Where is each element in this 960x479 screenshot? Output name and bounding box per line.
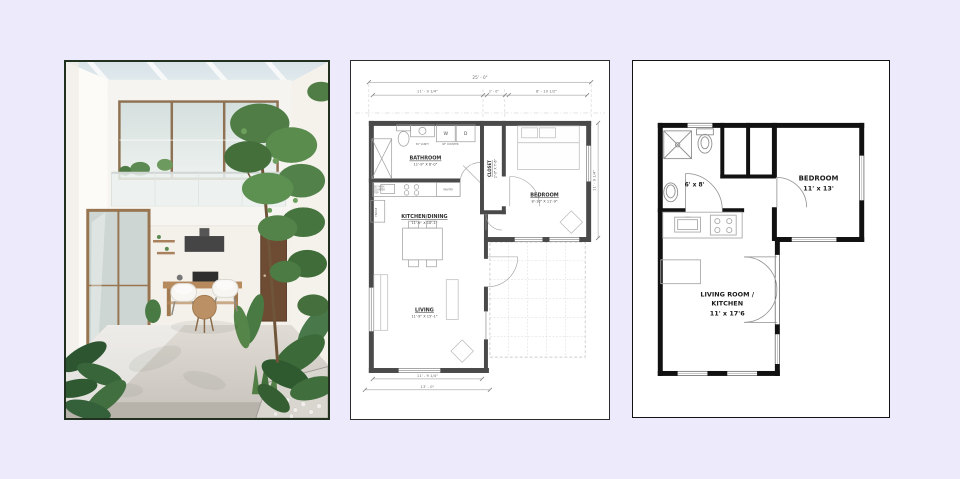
- washer-label: W: [444, 131, 449, 137]
- room-label-bedroom: BEDROOM: [530, 192, 559, 198]
- room-size-closet: 2'-0" X 7'-6": [493, 158, 497, 178]
- floor-plan-simple-drawing: 6' x 8' BEDROOM 11' x 13' LIVING ROOM / …: [633, 61, 889, 417]
- dim-top-left: 11' - 9 1/4": [417, 90, 438, 94]
- dryer-label: D: [464, 131, 468, 137]
- fridge-label: FRIDGE: [375, 207, 378, 216]
- room-size-bathroom: 6' x 8': [685, 181, 705, 188]
- room-label-bedroom: BEDROOM: [799, 174, 839, 182]
- room-size-kitchen: 11'-9" X 10'-1": [411, 221, 437, 225]
- dim-top-mid: 2' - 0": [489, 90, 500, 94]
- dim-bottom-outer: 13' - 0": [421, 385, 435, 389]
- patio-deck: [490, 242, 585, 357]
- room-label-bathroom: BATHROOM: [409, 156, 441, 162]
- dim-overall-width: 25' - 0": [472, 75, 487, 80]
- room-size-bedroom: 8'-10" X 11'-9": [531, 199, 557, 203]
- kitchen-fixtures: [661, 212, 742, 283]
- vanity-label: 36" VANITY: [416, 143, 430, 146]
- dim-bottom-inner: 11' - 9 1/4": [417, 374, 438, 378]
- room-label-living-line1: LIVING ROOM /: [700, 291, 754, 299]
- room-size-living: 11'-9" X 15'-1": [411, 314, 437, 318]
- room-size-bathroom: 11'-9" X 6'-0": [413, 163, 437, 167]
- room-size-bedroom: 11' x 13': [803, 184, 834, 192]
- courtyard-photo-art: [66, 62, 328, 418]
- bathroom-fixtures: [664, 129, 714, 202]
- dim-top-right: 8' - 10 1/2": [536, 90, 557, 94]
- room-size-living: 11' x 17'6: [710, 309, 745, 317]
- floor-plan-detailed-drawing: 25' - 0" 11' - 9 1/4" 2' - 0" 8' - 10 1/…: [351, 61, 609, 419]
- room-label-living-line2: KITCHEN: [711, 299, 743, 307]
- pantry-label: PANTRY: [443, 187, 453, 191]
- counter-top-label-3: TOP: [374, 191, 379, 194]
- floor-plan-simple: 6' x 8' BEDROOM 11' x 13' LIVING ROOM / …: [632, 60, 890, 418]
- room-label-kitchen: KITCHEN/DINING: [401, 214, 447, 220]
- room-label-living: LIVING: [415, 307, 434, 313]
- counter-label: 48" COUNTER: [442, 143, 459, 146]
- windows: [678, 123, 864, 375]
- bedroom-furniture: [518, 126, 583, 233]
- living-furniture: [374, 275, 474, 363]
- reference-lines: [355, 84, 605, 119]
- room-label-closet: CLOSET: [487, 160, 492, 177]
- doors: [686, 174, 807, 325]
- walls: [658, 123, 864, 376]
- bathroom-fixtures: [372, 125, 475, 179]
- floor-plan-detailed: 25' - 0" 11' - 9 1/4" 2' - 0" 8' - 10 1/…: [350, 60, 610, 420]
- courtyard-photo: [64, 60, 330, 420]
- dim-right-side: 11' - 9 1/4": [593, 170, 597, 191]
